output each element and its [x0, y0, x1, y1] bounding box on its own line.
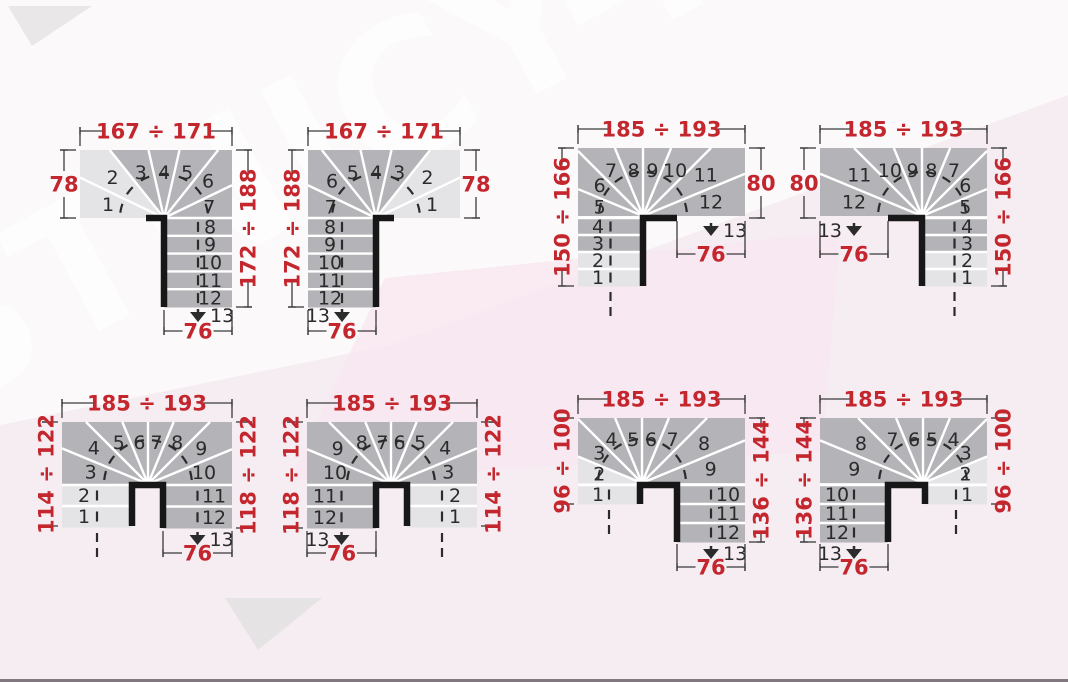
step-number-1: 1: [592, 484, 604, 506]
step-number-8: 8: [698, 433, 710, 455]
step-number-11: 11: [847, 165, 871, 187]
step-number-11: 11: [313, 485, 337, 507]
dim-label-left: 150 ÷ 166: [551, 157, 575, 277]
step-number-3: 3: [135, 162, 147, 184]
dim-label-bottom: 76: [696, 243, 725, 267]
step-number-2: 2: [421, 167, 433, 189]
dim-label-top: 167 ÷ 171: [96, 120, 216, 144]
dim-label-top: 185 ÷ 193: [87, 392, 207, 416]
wall-corner: [376, 218, 394, 307]
step-number-1: 1: [102, 194, 114, 216]
wall-corner: [640, 485, 677, 542]
dim-label-left: 118 ÷ 122: [280, 415, 304, 535]
step-number-6: 6: [133, 432, 145, 454]
diagram-d3: 43215678910111213185 ÷ 19376150 ÷ 16680: [551, 118, 776, 317]
step-number-7: 7: [667, 429, 679, 451]
dim-label-right: 118 ÷ 122: [237, 415, 261, 535]
dim-label-left: 172 ÷ 188: [281, 169, 305, 289]
dim-label-bottom: 76: [183, 320, 212, 344]
step-number-3: 3: [960, 442, 972, 464]
step-number-4: 4: [88, 438, 100, 460]
step-number-8: 8: [171, 432, 183, 454]
step-number-2: 2: [78, 485, 90, 507]
dim-label-bottom: 76: [327, 542, 356, 566]
step-number-12: 12: [825, 522, 849, 544]
step-number-final: 13: [723, 543, 747, 565]
staircase-diagrams-canvas: 89101112123456713167 ÷ 1717678172 ÷ 1888…: [0, 0, 1068, 682]
dim-label-left: 136 ÷ 144: [793, 420, 817, 540]
step-number-10: 10: [663, 160, 687, 182]
step-number-6: 6: [959, 175, 971, 197]
step-number-5: 5: [414, 432, 426, 454]
step-number-final: 13: [210, 305, 234, 327]
step-number-7: 7: [376, 432, 388, 454]
step-number-9: 9: [848, 458, 860, 480]
step-number-6: 6: [394, 432, 406, 454]
step-number-12: 12: [842, 191, 866, 213]
step-number-4: 4: [605, 429, 617, 451]
dim-label-top: 185 ÷ 193: [844, 118, 964, 142]
step-number-4: 4: [948, 429, 960, 451]
dim-label-right: 78: [461, 173, 490, 197]
step-number-7: 7: [886, 429, 898, 451]
step-number-1: 1: [426, 194, 438, 216]
step-number-10: 10: [323, 462, 347, 484]
diagram-d7: 11011122345678913185 ÷ 1937696 ÷ 100136 …: [551, 388, 774, 580]
dim-label-bottom: 76: [839, 243, 868, 267]
diagram-d5: 21111234567891013185 ÷ 19376114 ÷ 122118…: [35, 392, 261, 566]
dim-label-right: 150 ÷ 166: [992, 157, 1016, 277]
step-number-6: 6: [594, 175, 606, 197]
step-number-1: 1: [961, 267, 973, 289]
step-number-11: 11: [202, 485, 226, 507]
dim-label-right: 136 ÷ 144: [750, 420, 774, 540]
step-number-3: 3: [593, 442, 605, 464]
step-number-2: 2: [107, 167, 119, 189]
step-number-final: 13: [305, 529, 329, 551]
step-number-12: 12: [202, 507, 226, 529]
step-number-8: 8: [855, 433, 867, 455]
dim-label-right: 80: [746, 172, 775, 196]
step-number-final: 13: [306, 305, 330, 327]
screenshot-root: LESTNICY-PROSTO.RU 89101112123456713167 …: [0, 0, 1068, 682]
step-number-9: 9: [907, 160, 919, 182]
wall-corner: [643, 218, 677, 286]
step-number-9: 9: [332, 438, 344, 460]
step-number-2: 2: [593, 464, 605, 486]
step-number-8: 8: [925, 160, 937, 182]
dim-label-right: 114 ÷ 122: [482, 414, 506, 534]
step-number-7: 7: [948, 160, 960, 182]
step-number-12: 12: [716, 522, 740, 544]
step-number-6: 6: [202, 171, 214, 193]
step-number-1: 1: [961, 484, 973, 506]
step-number-2: 2: [449, 485, 461, 507]
diagram-d6: 21111234567891013185 ÷ 19376118 ÷ 122114…: [280, 392, 506, 566]
step-number-1: 1: [78, 506, 90, 528]
step-number-final: 13: [210, 529, 234, 551]
diagram-d2: 89101112123456713167 ÷ 17176172 ÷ 18878: [281, 120, 491, 344]
step-number-1: 1: [449, 506, 461, 528]
step-number-final: 13: [723, 220, 747, 242]
step-number-2: 2: [960, 464, 972, 486]
step-number-3: 3: [442, 462, 454, 484]
step-number-4: 4: [158, 162, 170, 184]
step-number-9: 9: [646, 160, 658, 182]
step-number-9: 9: [705, 458, 717, 480]
dim-label-left: 114 ÷ 122: [35, 414, 59, 534]
step-number-7: 7: [151, 432, 163, 454]
wall-corner: [146, 218, 164, 307]
step-number-6: 6: [645, 429, 657, 451]
step-number-8: 8: [356, 432, 368, 454]
diagram-d4: 43215678910111213185 ÷ 1937680150 ÷ 166: [789, 118, 1015, 317]
step-number-final: 13: [818, 543, 842, 565]
step-number-1: 1: [592, 267, 604, 289]
exit-arrow-icon: [703, 226, 719, 236]
dim-label-bottom: 76: [696, 556, 725, 580]
dim-label-top: 185 ÷ 193: [332, 392, 452, 416]
step-number-5: 5: [113, 432, 125, 454]
step-number-5: 5: [926, 429, 938, 451]
dim-label-top: 185 ÷ 193: [844, 388, 964, 412]
step-number-4: 4: [370, 162, 382, 184]
dim-label-right: 96 ÷ 100: [992, 408, 1016, 513]
dim-label-top: 167 ÷ 171: [324, 120, 444, 144]
diagram-d1: 89101112123456713167 ÷ 1717678172 ÷ 188: [49, 120, 260, 344]
exit-arrow-icon: [846, 226, 862, 236]
step-number-3: 3: [85, 462, 97, 484]
step-number-5: 5: [347, 162, 359, 184]
step-number-5: 5: [959, 197, 971, 219]
step-number-11: 11: [694, 165, 718, 187]
dim-label-left: 96 ÷ 100: [551, 408, 575, 513]
step-number-5: 5: [594, 197, 606, 219]
wall-corner: [376, 485, 407, 528]
step-number-4: 4: [439, 438, 451, 460]
step-number-10: 10: [878, 160, 902, 182]
dim-label-top: 185 ÷ 193: [602, 118, 722, 142]
step-number-final: 13: [818, 220, 842, 242]
step-number-5: 5: [627, 429, 639, 451]
step-number-12: 12: [313, 507, 337, 529]
dim-label-left: 78: [49, 173, 78, 197]
wall-corner: [888, 218, 922, 286]
dim-label-right: 172 ÷ 188: [237, 169, 261, 289]
step-number-5: 5: [181, 162, 193, 184]
step-number-3: 3: [393, 162, 405, 184]
wall-corner: [132, 485, 163, 528]
step-number-7: 7: [325, 197, 337, 219]
dim-label-top: 185 ÷ 193: [602, 388, 722, 412]
step-number-6: 6: [326, 171, 338, 193]
step-number-9: 9: [195, 438, 207, 460]
dim-label-bottom: 76: [839, 556, 868, 580]
step-number-7: 7: [203, 197, 215, 219]
step-number-6: 6: [908, 429, 920, 451]
diagram-d8: 11011122345678913185 ÷ 19376136 ÷ 14496 …: [793, 388, 1016, 580]
step-number-12: 12: [699, 191, 723, 213]
step-number-10: 10: [192, 462, 216, 484]
dim-label-bottom: 76: [183, 542, 212, 566]
step-number-7: 7: [605, 160, 617, 182]
step-number-8: 8: [628, 160, 640, 182]
wall-corner: [888, 485, 925, 542]
dim-label-bottom: 76: [327, 320, 356, 344]
dim-label-left: 80: [789, 172, 818, 196]
